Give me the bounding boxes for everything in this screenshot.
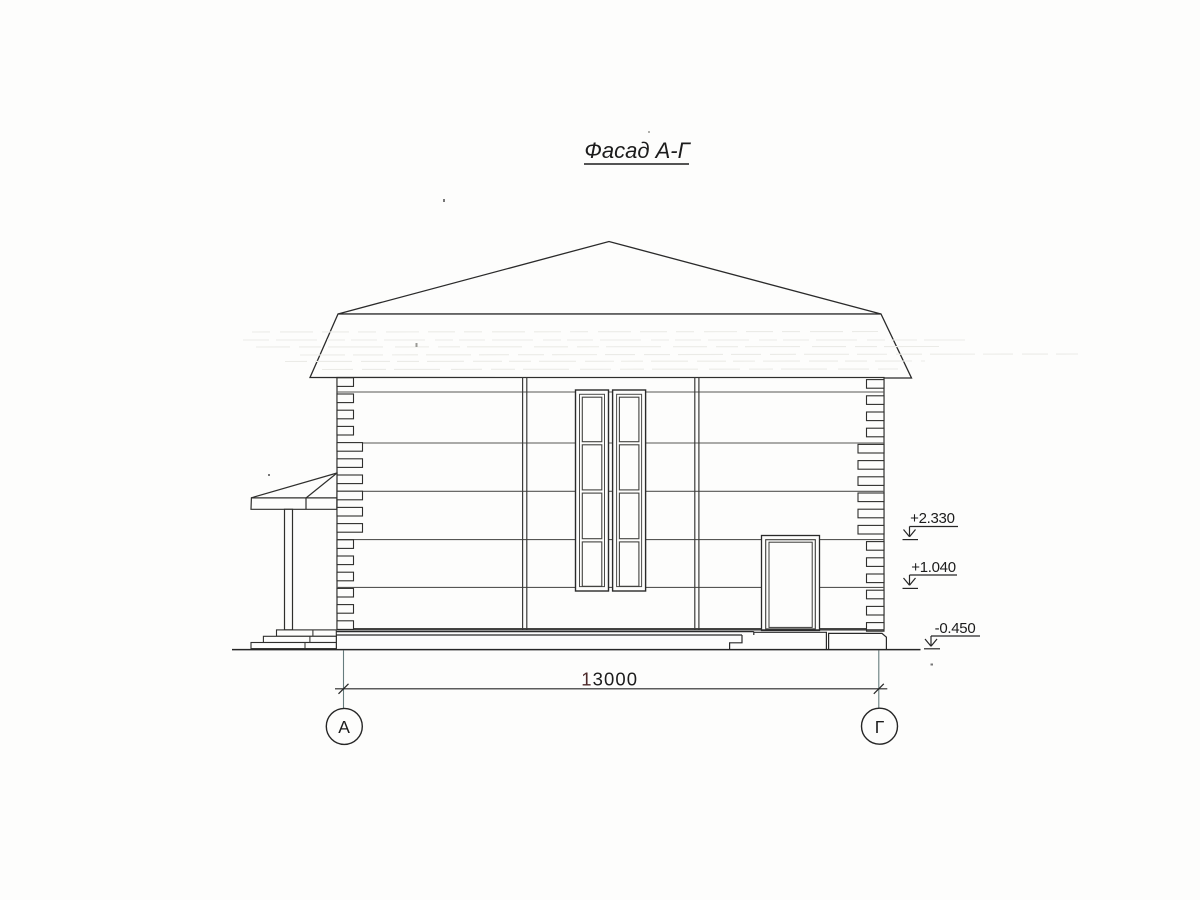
svg-text:Г: Г (875, 717, 885, 737)
svg-text:-0.450: -0.450 (935, 620, 976, 637)
svg-text:+1.040: +1.040 (911, 559, 956, 576)
svg-text:Фасад А-Г: Фасад А-Г (584, 138, 691, 163)
svg-text:+2.330: +2.330 (910, 510, 955, 527)
svg-text:13000: 13000 (581, 668, 638, 689)
svg-text:А: А (338, 717, 350, 737)
